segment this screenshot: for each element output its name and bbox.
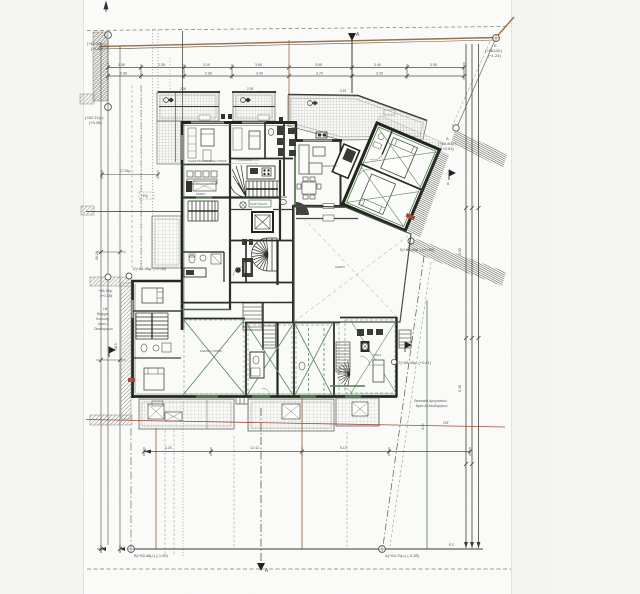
svg-text:2.90: 2.90 [180, 87, 186, 91]
svg-text:3.60: 3.60 [255, 63, 262, 67]
svg-text:3.55: 3.55 [430, 63, 437, 67]
svg-text:ΚΑΘΙΣΤ.: ΚΑΘΙΣΤ. [196, 192, 206, 196]
svg-text:ΚΑΘΙΣΤΙΚΟ-ΚΟΥΖΙΝΑ-ΥΠΝΟΣ: ΚΑΘΙΣΤΙΚΟ-ΚΟΥΖΙΝΑ-ΥΠΝΟΣ [188, 159, 227, 163]
svg-text:5.10: 5.10 [340, 446, 347, 450]
svg-text:(+0.38): (+0.38) [89, 120, 102, 125]
svg-text:Κινουσης: Κινουσης [96, 317, 110, 321]
svg-text:1.50: 1.50 [118, 63, 125, 67]
svg-text:ΠΛΑΤΥΣΚΑΛΟ: ΠΛΑΤΥΣΚΑΛΟ [250, 202, 267, 206]
svg-text:2)+66.36μ. (+0.38): 2)+66.36μ. (+0.38) [133, 266, 167, 271]
svg-text:ΑΙΘΡΙΟ: ΑΙΘΡΙΟ [335, 265, 345, 269]
svg-text:ΥΠΝ.4: ΥΠΝ.4 [373, 353, 382, 357]
svg-text:Δ(+64.70μ.) (-0.28): Δ(+64.70μ.) (-0.28) [385, 553, 420, 558]
svg-text:Άρτα & Οικοδομήτων: Άρτα & Οικοδομήτων [416, 404, 448, 408]
svg-text:3.20: 3.20 [376, 72, 383, 76]
svg-text:(+0.63): (+0.63) [441, 146, 454, 151]
svg-text:3.15: 3.15 [340, 89, 346, 93]
svg-text:12.42: 12.42 [250, 446, 259, 450]
svg-text:Β(+63.48μ.) (-1.50): Β(+63.48μ.) (-1.50) [134, 553, 169, 558]
svg-text:5.16: 5.16 [458, 385, 462, 392]
svg-text:ΟΙΓ: ΟΙΓ [443, 421, 449, 425]
svg-text:ΥΠΝΟΔΩΜΑΤΙΟ 2: ΥΠΝΟΔΩΜΑΤΙΟ 2 [236, 158, 259, 162]
svg-text:ΚΑΘ/ΚΟ+ΥΠΝΟΣ: ΚΑΘ/ΚΟ+ΥΠΝΟΣ [200, 349, 222, 353]
svg-text:2.35: 2.35 [158, 63, 165, 67]
svg-text:(+0.38): (+0.38) [100, 294, 113, 298]
svg-text:Βιοχημα: Βιοχημα [97, 312, 109, 316]
svg-text:δ(+65.4θμ.) (+0.50): δ(+65.4θμ.) (+0.50) [400, 247, 435, 252]
svg-text:3.40: 3.40 [374, 63, 381, 67]
svg-text:2.35: 2.35 [247, 87, 253, 91]
svg-text:+66.36μ.: +66.36μ. [98, 289, 113, 293]
svg-text:(+1.24): (+1.24) [488, 53, 501, 58]
svg-text:2.90: 2.90 [205, 72, 212, 76]
svg-text:3.95: 3.95 [315, 63, 322, 67]
svg-text:ΚΑΘΙΣΤΙΚΟ: ΚΑΘΙΣΤΙΚΟ [322, 164, 338, 168]
svg-text:4.25: 4.25 [165, 446, 172, 450]
svg-text:+67μ: +67μ [141, 194, 148, 198]
svg-text:28.5: 28.5 [114, 343, 118, 350]
svg-text:3.70: 3.70 [316, 72, 323, 76]
svg-text:17.04μ: 17.04μ [120, 169, 130, 173]
svg-text:Θεσπιαία Αγωγιαπίου: Θεσπιαία Αγωγιαπίου [414, 399, 447, 403]
svg-text:Ρ.Ζ: Ρ.Ζ [449, 543, 454, 547]
svg-text:3.40: 3.40 [256, 72, 263, 76]
svg-text:Αρπο &: Αρπο & [98, 322, 110, 326]
svg-text:4.00: 4.00 [421, 423, 425, 430]
svg-text:3.05: 3.05 [458, 248, 462, 255]
svg-text:Οικοδομητων: Οικοδομητων [94, 327, 113, 331]
svg-text:3.10: 3.10 [203, 63, 210, 67]
svg-text:56.18: 56.18 [95, 251, 99, 260]
svg-text:0.90: 0.90 [120, 72, 127, 76]
svg-text:Lift: Lift [103, 307, 107, 311]
